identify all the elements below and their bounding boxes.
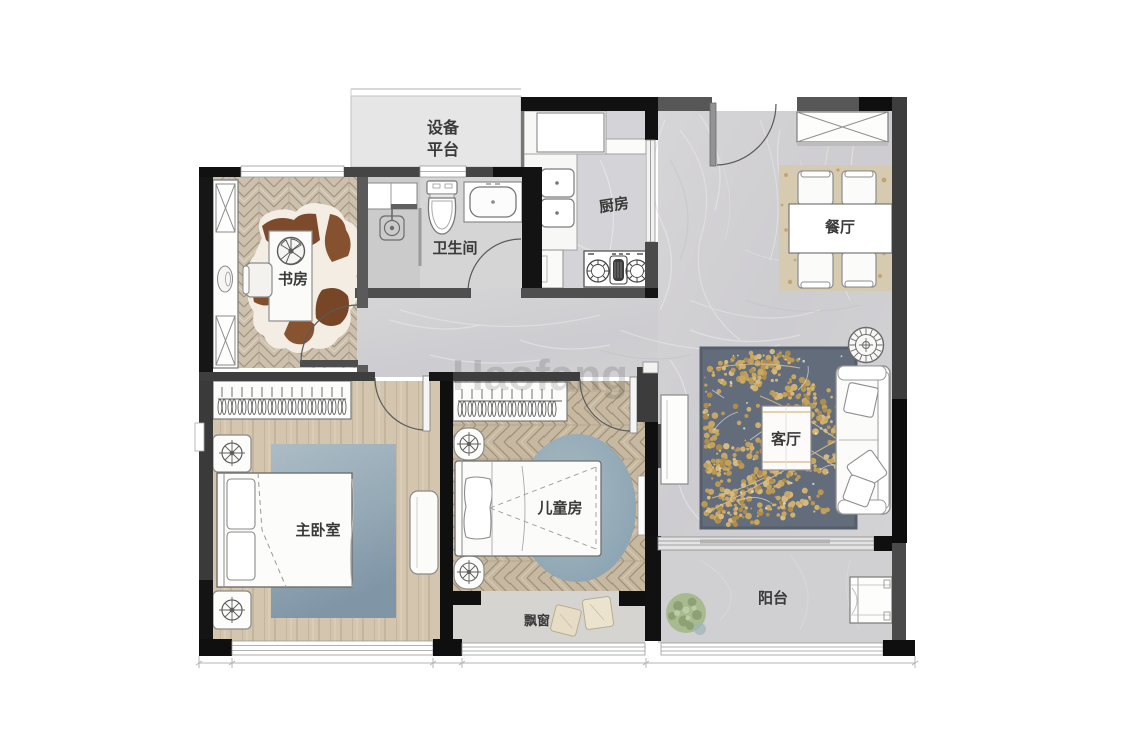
svg-text:主卧室: 主卧室: [295, 521, 340, 539]
svg-text:阳台: 阳台: [758, 589, 788, 607]
svg-text:客厅: 客厅: [770, 430, 801, 448]
svg-text:设备: 设备: [427, 118, 460, 137]
svg-text:书房: 书房: [278, 270, 308, 288]
svg-text:卫生间: 卫生间: [432, 239, 477, 257]
svg-text:餐厅: 餐厅: [825, 218, 855, 236]
svg-text:儿童房: 儿童房: [536, 499, 582, 517]
svg-text:平台: 平台: [427, 140, 459, 159]
svg-text:飘窗: 飘窗: [524, 613, 550, 628]
